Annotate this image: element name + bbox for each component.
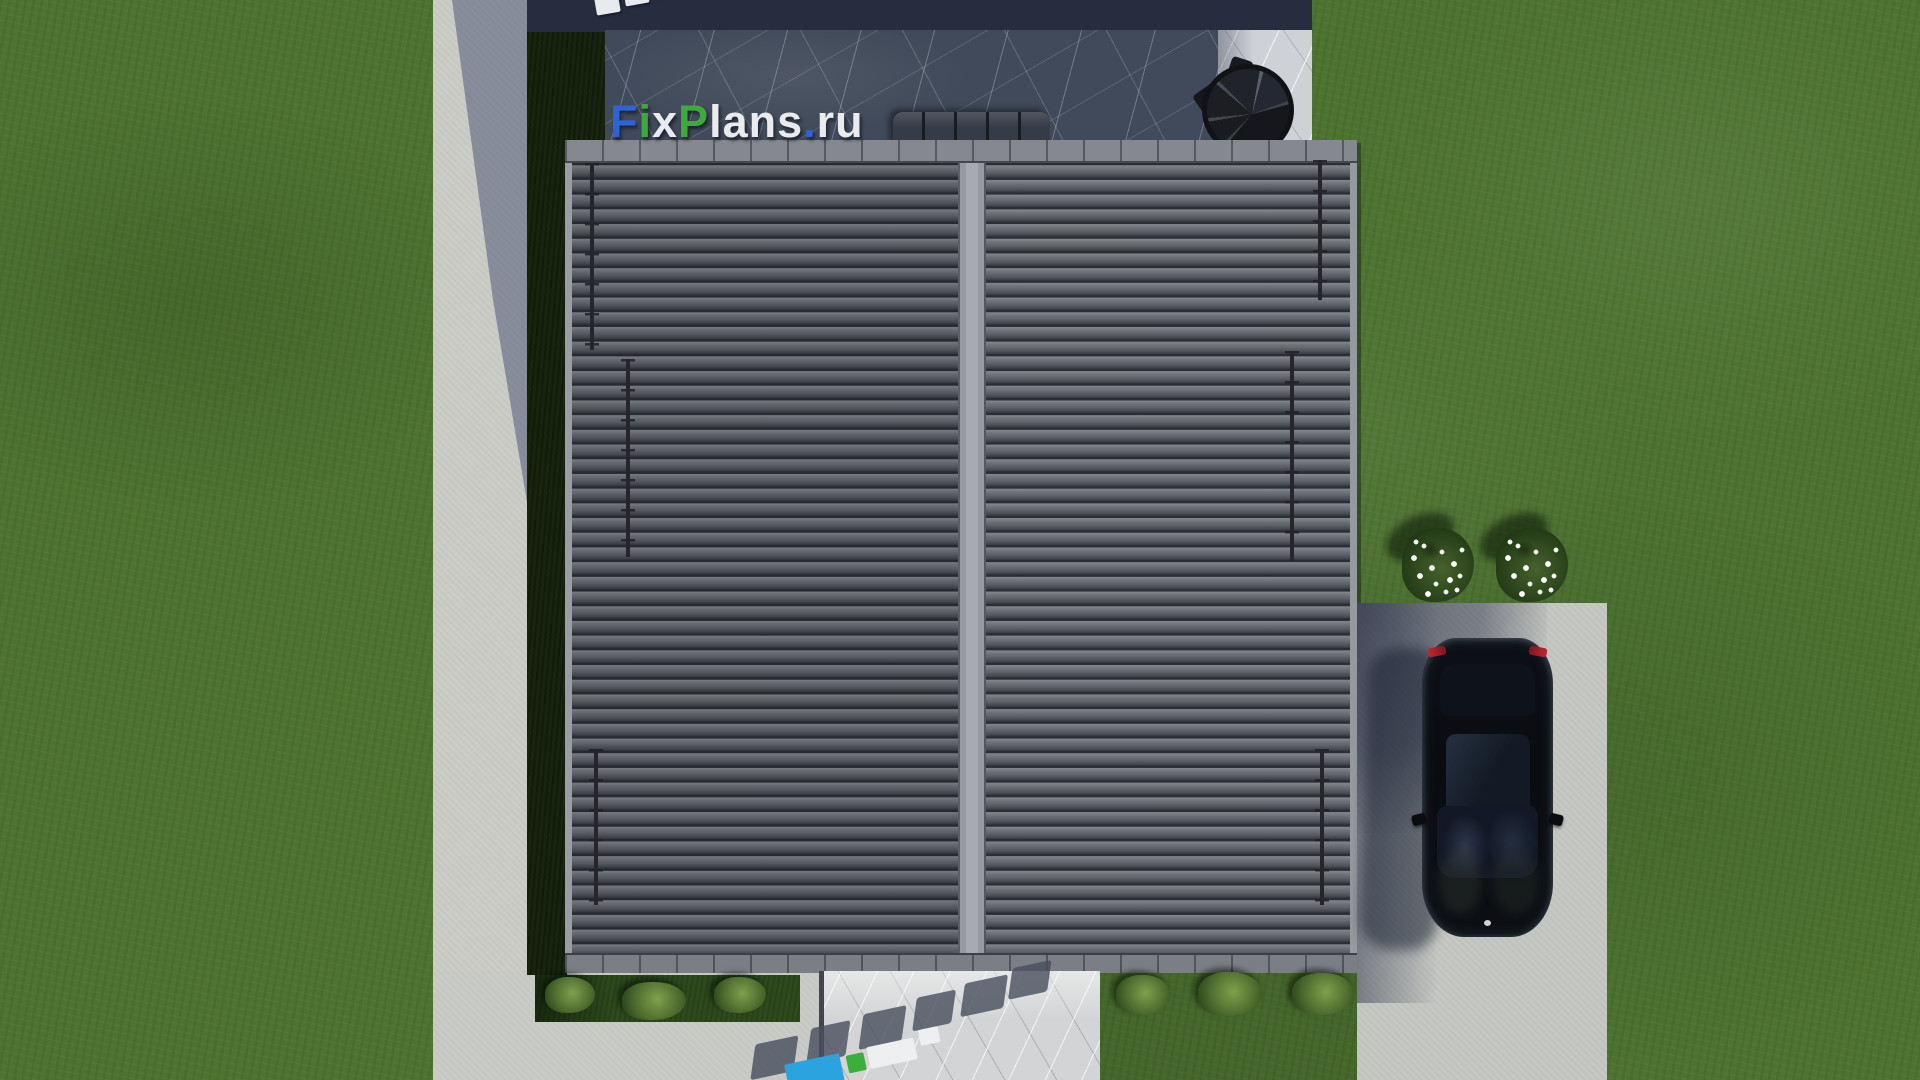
tiled-roof: [565, 140, 1357, 973]
watermark-letter: n: [749, 96, 778, 147]
car-hood-reflection: [1492, 850, 1540, 914]
watermark-letter: s: [777, 96, 803, 147]
roof-edge-trim-right: [1350, 140, 1357, 973]
parked-car: [1422, 638, 1553, 937]
car-badge: [1484, 920, 1491, 926]
car-mirror-right: [1548, 812, 1564, 826]
watermark-letter: l: [709, 96, 723, 147]
roof-edge-trim-left: [565, 140, 572, 973]
footpath-left: [433, 0, 530, 1080]
logo-block: [846, 1052, 867, 1073]
render-canvas: FixPlans.ru: [0, 0, 1920, 1080]
watermark-letter: i: [639, 96, 653, 147]
watermark-letter: P: [678, 96, 709, 147]
terrace-shaded-band: [527, 0, 1312, 34]
roof-snow-guard: [1315, 749, 1329, 905]
roof-ridge: [958, 147, 986, 953]
watermark-letter: u: [835, 96, 864, 147]
watermark-letter: .: [803, 96, 817, 147]
car-rear-window: [1440, 664, 1535, 716]
roof-pane-left: [572, 163, 958, 953]
watermark-letter: r: [817, 96, 836, 147]
roof-snow-guard: [1285, 351, 1299, 561]
roof-snow-guard: [621, 359, 635, 557]
roof-snow-guard: [589, 749, 603, 905]
watermark-letter: x: [652, 96, 678, 147]
watermark-logo: FixPlans.ru: [610, 96, 864, 148]
car-taillight-left: [1427, 646, 1446, 658]
watermark-letter: a: [723, 96, 749, 147]
car-hood-reflection: [1438, 850, 1482, 914]
car-roof-glass: [1446, 734, 1530, 816]
roof-snow-guard: [585, 163, 599, 350]
roof-snow-guard: [1313, 160, 1327, 300]
house-shadow-on-path: [433, 0, 530, 530]
roof-gutter-bottom: [565, 953, 1357, 973]
watermark-letter: F: [610, 96, 639, 147]
car-taillight-right: [1528, 646, 1547, 658]
car-mirror-left: [1411, 812, 1427, 826]
